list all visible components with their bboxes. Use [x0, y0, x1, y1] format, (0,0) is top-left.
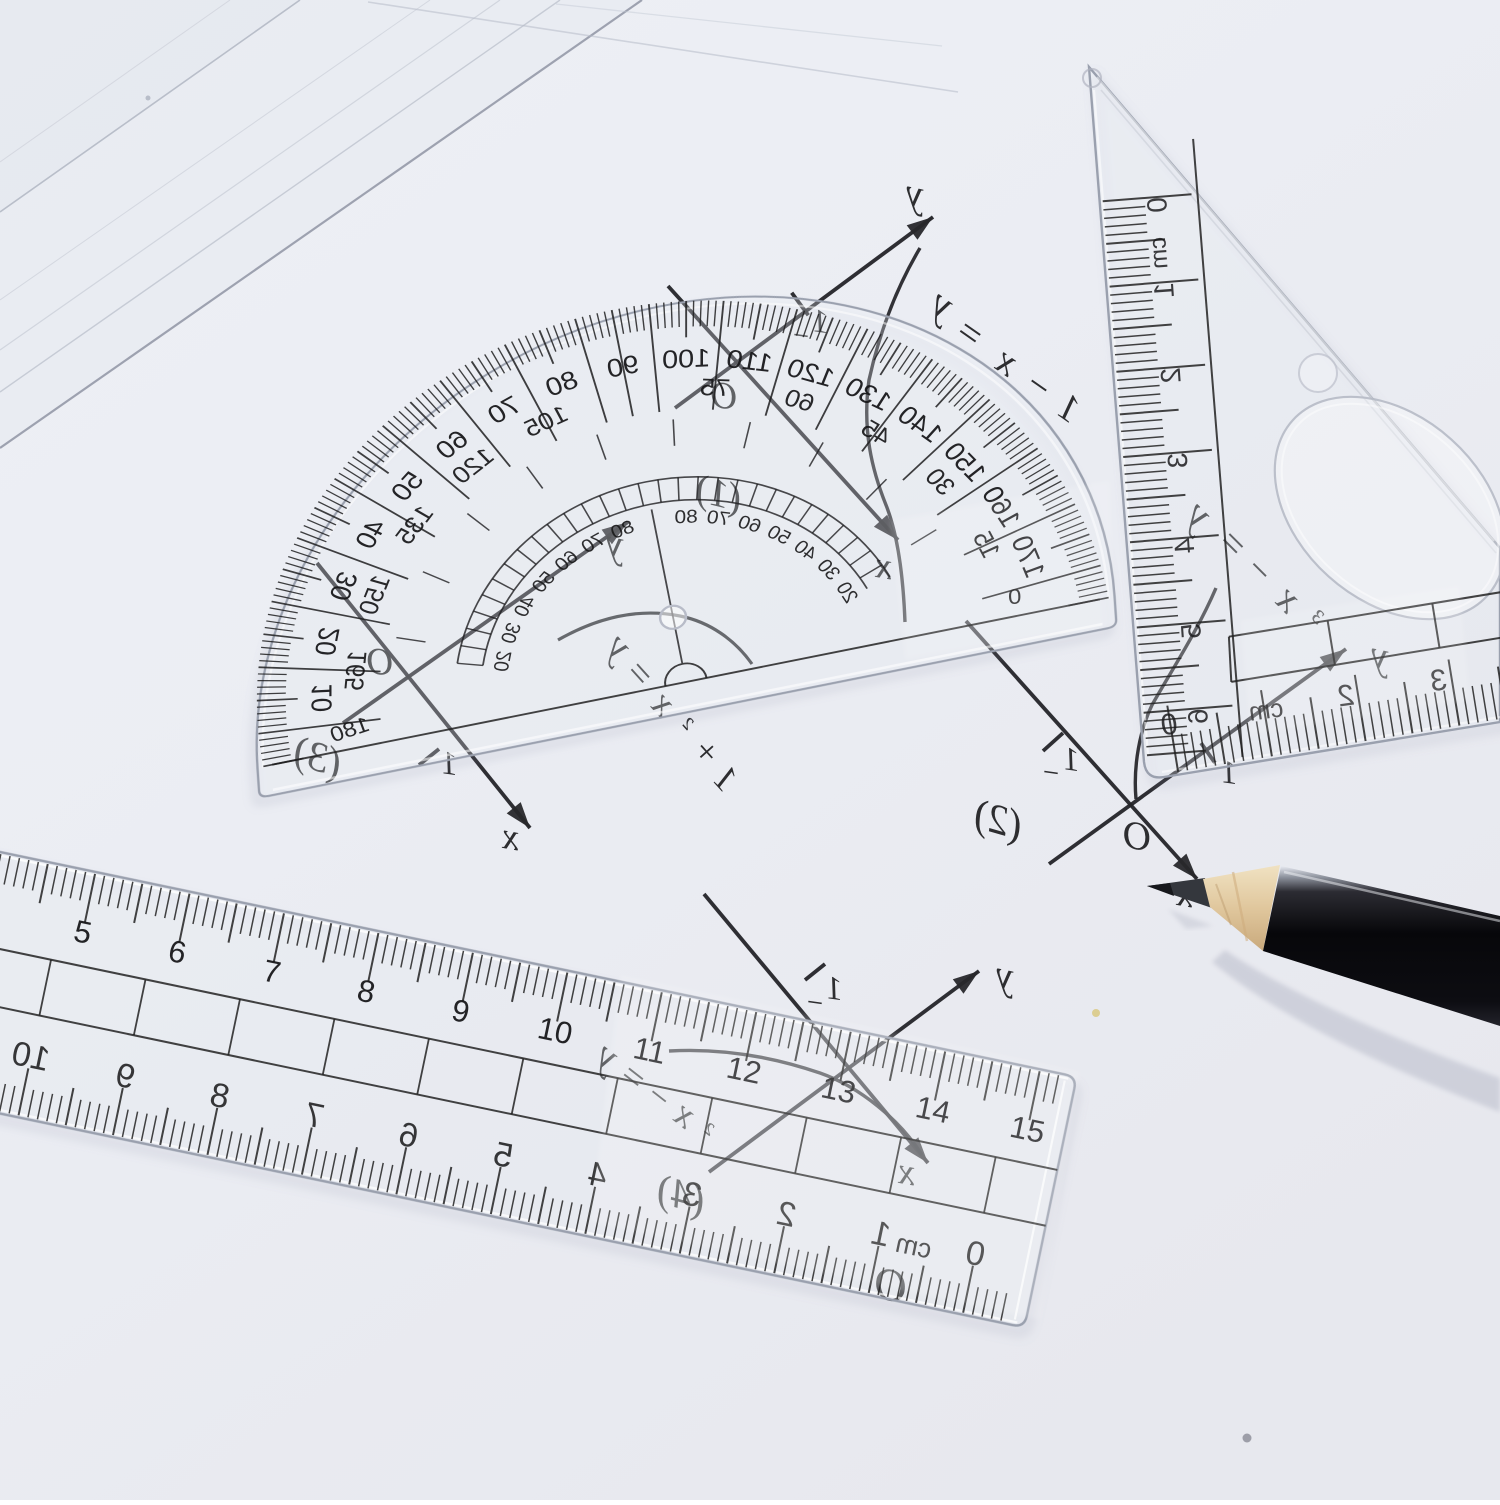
svg-text:75: 75: [699, 374, 731, 401]
svg-text:10: 10: [8, 1034, 53, 1079]
svg-text:0: 0: [1141, 196, 1173, 214]
svg-text:20: 20: [308, 625, 346, 657]
svg-text:cm: cm: [1144, 236, 1173, 270]
svg-text:20: 20: [490, 650, 517, 673]
svg-text:10: 10: [305, 683, 338, 713]
svg-text:70: 70: [705, 507, 732, 530]
svg-text:100: 100: [662, 343, 710, 374]
svg-text:5: 5: [1175, 622, 1207, 640]
svg-text:165: 165: [339, 650, 372, 691]
svg-text:6: 6: [1182, 707, 1214, 725]
svg-text:80: 80: [674, 506, 697, 528]
svg-text:110: 110: [724, 344, 775, 378]
svg-text:10: 10: [535, 1010, 576, 1051]
svg-text:2: 2: [1155, 367, 1187, 385]
svg-text:1: 1: [1148, 281, 1180, 299]
svg-text:3: 3: [1162, 452, 1194, 470]
svg-text:4: 4: [1168, 537, 1200, 555]
svg-text:90: 90: [604, 349, 641, 384]
